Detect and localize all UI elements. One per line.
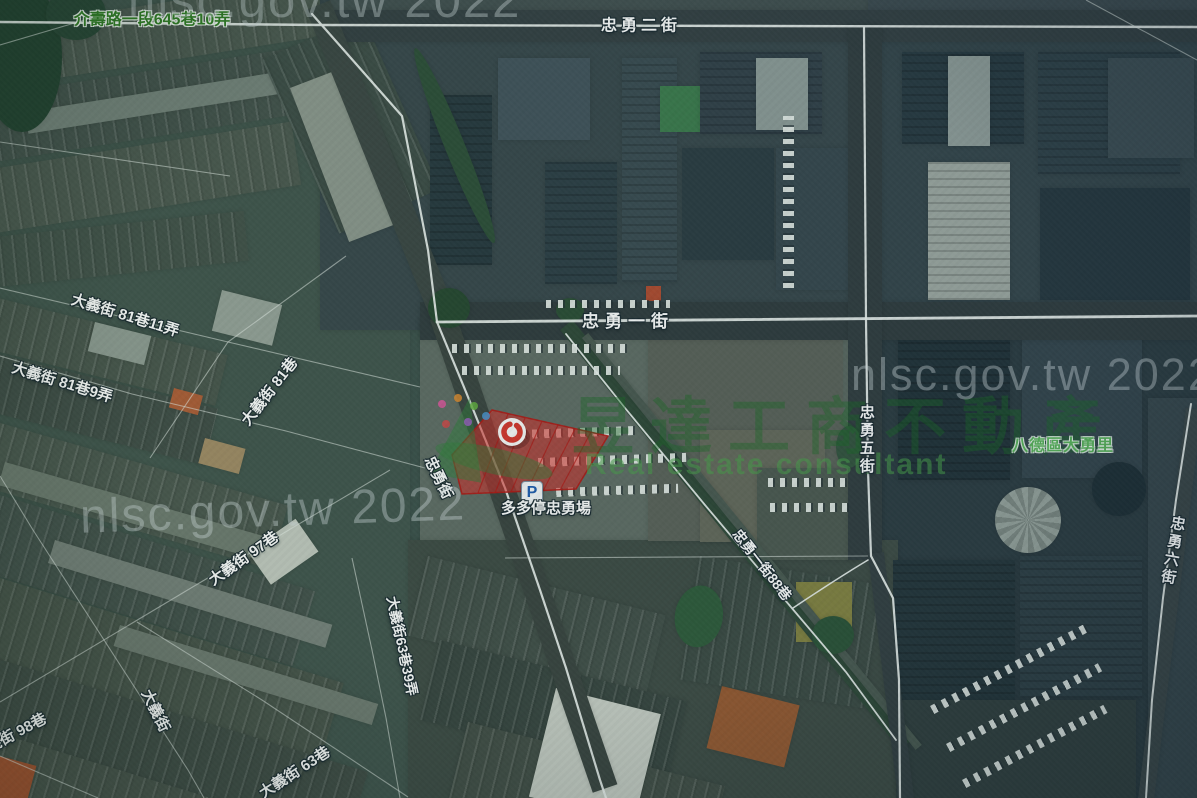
satellite-map[interactable]: 昱達工商不動產 Real estate consultant P 多多停忠勇場 …: [0, 0, 1197, 798]
provider-watermark: nlsc.gov.tw 2022: [851, 349, 1197, 401]
provider-watermarks-layer: nlsc.gov.tw 2022nlsc.gov.tw 2022nlsc.gov…: [0, 0, 1197, 798]
provider-watermark: nlsc.gov.tw 2022: [128, 0, 521, 29]
provider-watermark: nlsc.gov.tw 2022: [79, 476, 467, 544]
